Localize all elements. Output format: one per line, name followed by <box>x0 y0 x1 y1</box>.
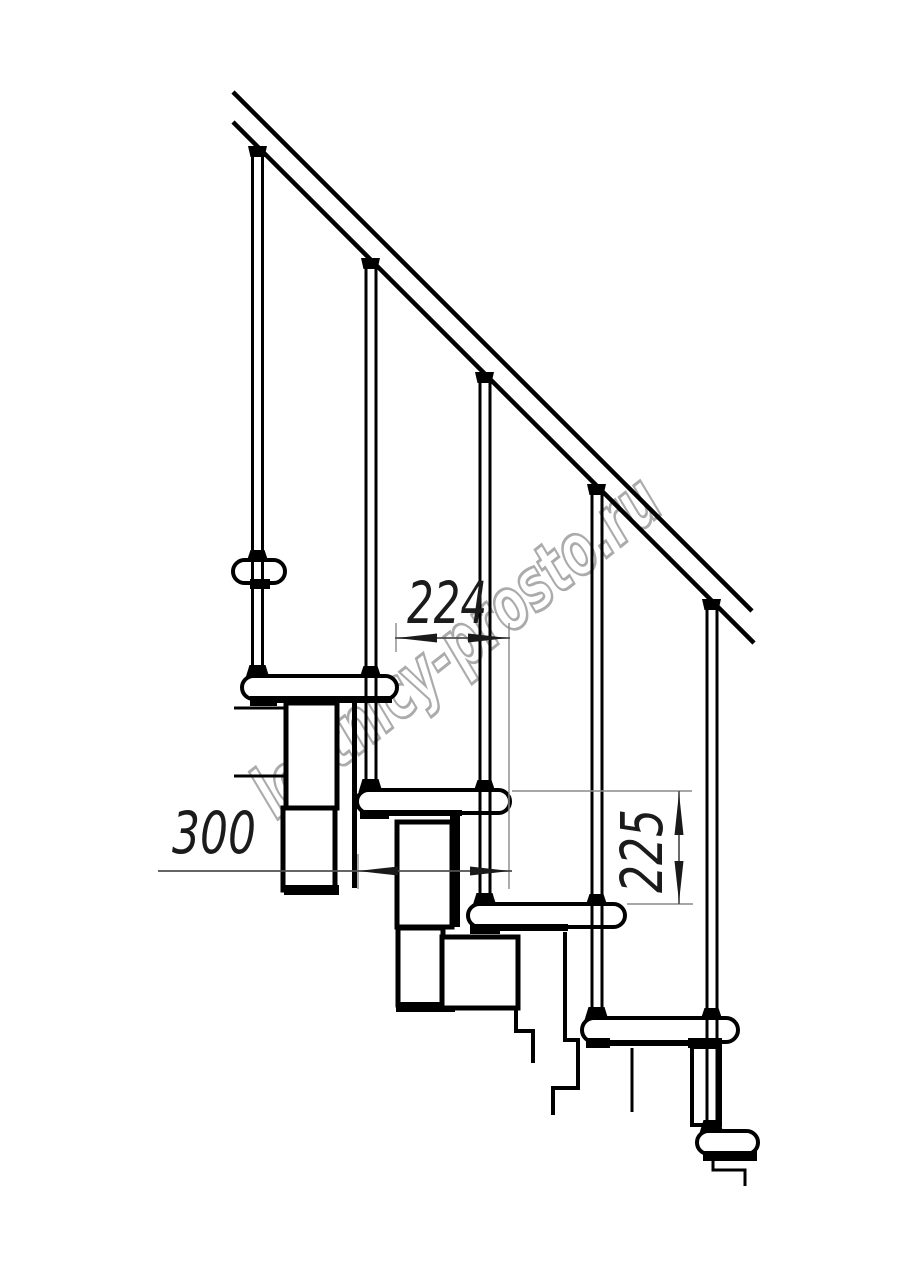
tread-3 <box>357 790 510 813</box>
dimension-label-225: 225 <box>608 809 676 893</box>
tread-mount-4 <box>586 894 608 906</box>
arrow-left-icon <box>358 867 398 876</box>
module-box-step3-upper <box>397 822 452 927</box>
staircase-drawing: lestnicy-prosto.ru <box>0 0 914 1280</box>
tread-6 <box>697 1131 758 1154</box>
handrail-top-line <box>233 92 752 611</box>
tread-4-band <box>498 924 568 931</box>
baluster-3-foot <box>473 893 497 906</box>
dimension-label-224: 224 <box>407 569 487 637</box>
tread-6-pad <box>703 1151 757 1161</box>
module-link-step4 <box>516 1007 533 1063</box>
module-strut-step3 <box>450 812 460 927</box>
baluster-2-foot <box>359 779 383 792</box>
module-box-step2-base <box>284 885 339 895</box>
baluster-1 <box>253 155 263 668</box>
tread-5-pad <box>586 1038 610 1048</box>
tread-mount-3 <box>474 780 496 792</box>
baluster-4-foot <box>585 1007 609 1020</box>
staircase-drawing-page: lestnicy-prosto.ru <box>0 0 914 1280</box>
tread-mount-1 <box>247 550 269 562</box>
tread-2 <box>242 676 397 699</box>
tread-3-band <box>388 810 462 816</box>
tread-3-pad <box>360 810 389 819</box>
baluster-1-foot <box>246 665 270 678</box>
dimension-label-300: 300 <box>172 799 256 867</box>
module-box-step4 <box>442 937 518 1008</box>
tread-mount-5 <box>701 1008 723 1020</box>
tread-4-pad <box>470 924 500 934</box>
tread-5-band <box>608 1040 690 1046</box>
module-strut-step4 <box>553 932 578 1115</box>
tread-2-pad <box>250 696 277 706</box>
baluster-5-foot <box>700 1120 724 1133</box>
module-box-step2-upper <box>286 703 337 808</box>
module-box-step2-lower <box>283 808 335 890</box>
module-link-step6 <box>713 1161 745 1186</box>
handrail <box>233 92 754 643</box>
module-box-step3-lower <box>398 928 443 1005</box>
